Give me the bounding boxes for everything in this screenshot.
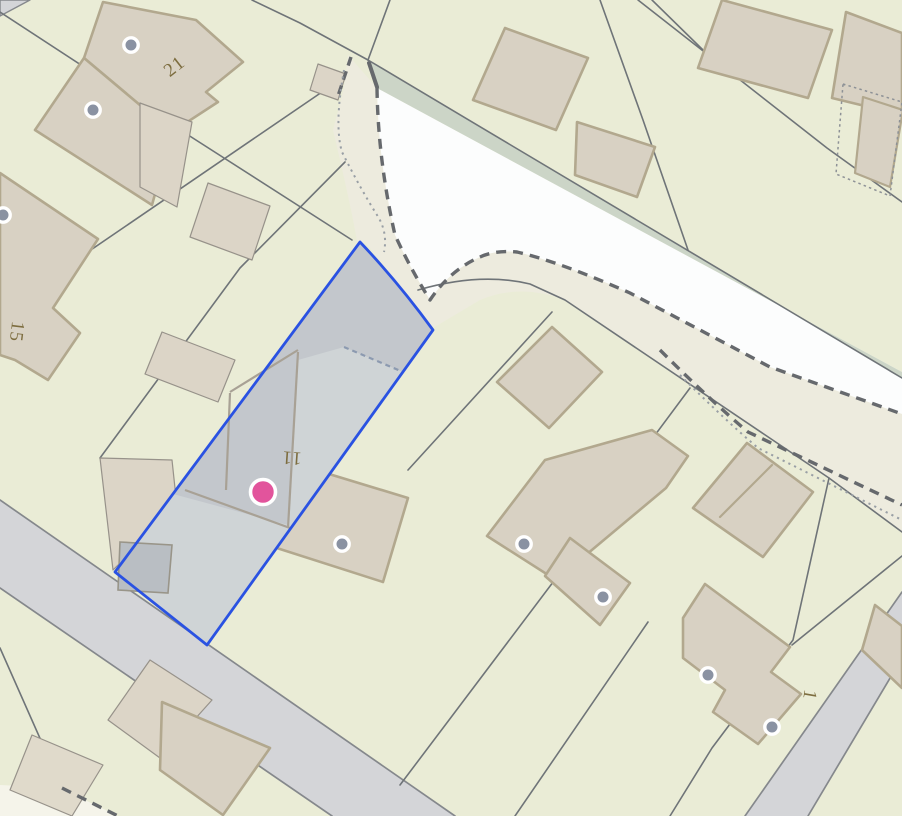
address-point-dot: [124, 38, 138, 52]
building: [310, 64, 346, 100]
building: [683, 584, 801, 744]
selected-location-marker[interactable]: [251, 480, 276, 505]
building: [497, 327, 602, 428]
address-point-dot: [765, 720, 779, 734]
road-corner-top-left: [0, 0, 30, 16]
building: [698, 0, 832, 98]
building: [693, 443, 813, 557]
parcel-line: [252, 0, 368, 60]
cadastral-map-viewport[interactable]: 2115111: [0, 0, 902, 816]
parcel-line: [368, 0, 390, 60]
map-canvas[interactable]: 2115111: [0, 0, 902, 816]
building: [473, 28, 588, 130]
parcel-line: [515, 622, 648, 816]
track-white-surface: [377, 88, 902, 414]
house-number-label: 11: [281, 446, 303, 468]
address-point-dot: [517, 537, 531, 551]
building: [145, 332, 235, 402]
parcel-line: [652, 0, 703, 50]
building: [140, 103, 192, 207]
address-point-dot: [0, 208, 10, 222]
building: [575, 122, 655, 197]
address-point-dot: [335, 537, 349, 551]
house-number-label: 15: [5, 320, 28, 343]
building: [855, 97, 902, 187]
selected-parcel-outbuilding: [118, 542, 172, 593]
building: [190, 183, 270, 260]
building: [0, 173, 98, 380]
address-point-dot: [701, 668, 715, 682]
house-number-label: 1: [798, 688, 821, 702]
address-point-dot: [596, 590, 610, 604]
address-point-dot: [86, 103, 100, 117]
